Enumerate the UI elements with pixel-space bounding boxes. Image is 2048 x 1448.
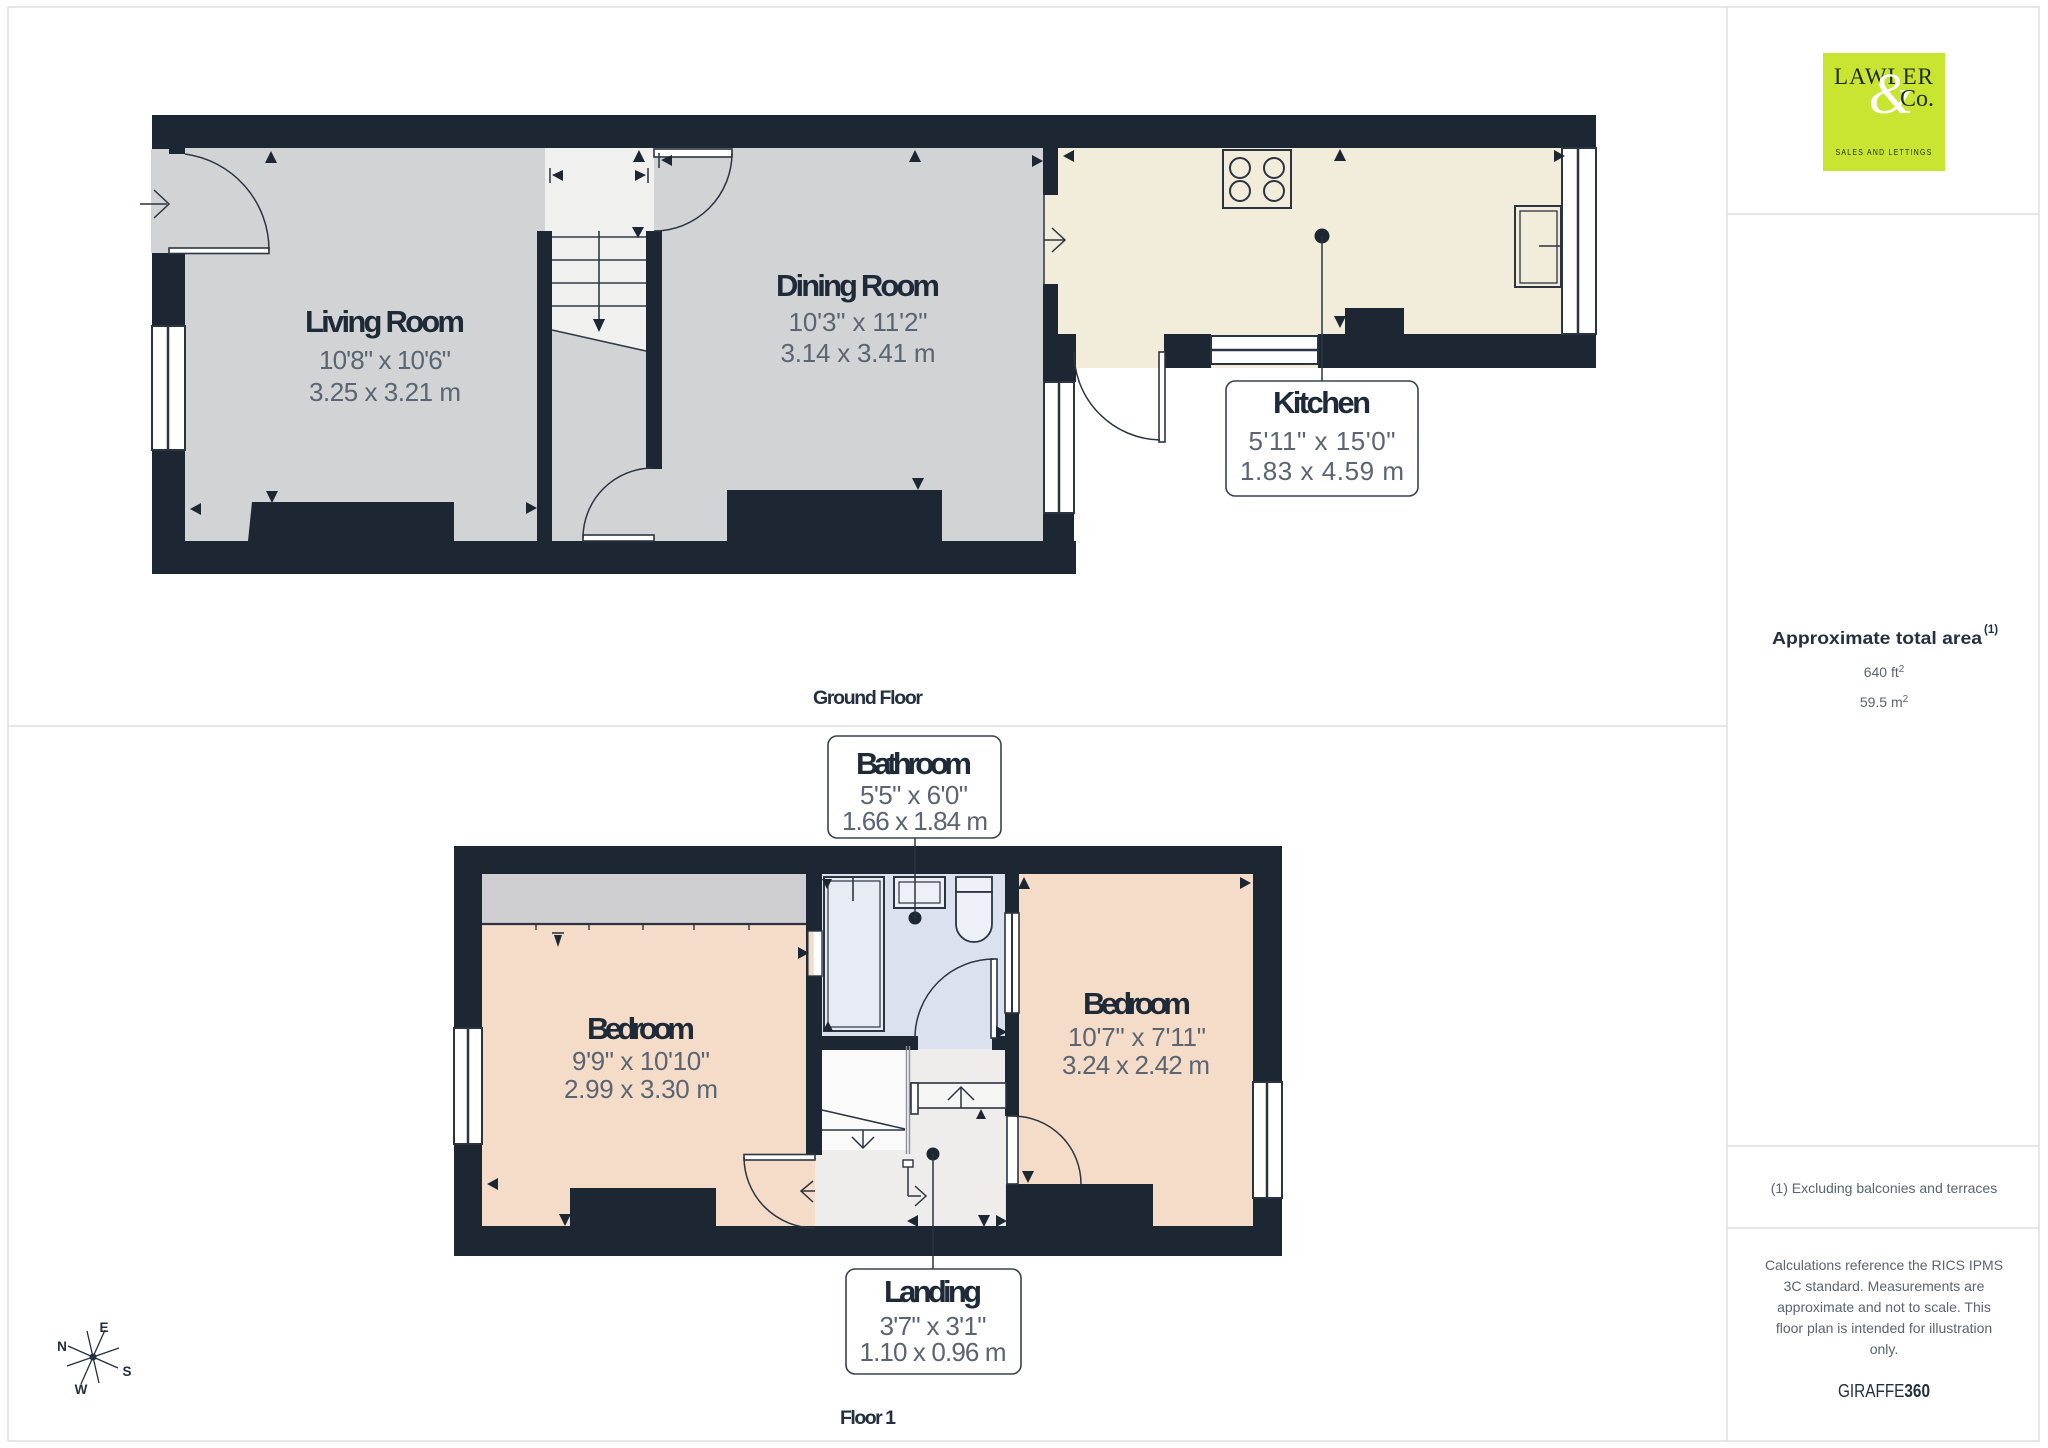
svg-text:10'7" x 7'11": 10'7" x 7'11" xyxy=(1068,1022,1206,1052)
svg-text:Approximate total area: Approximate total area xyxy=(1772,628,1982,648)
svg-text:Landing: Landing xyxy=(884,1274,982,1309)
svg-text:N: N xyxy=(57,1339,67,1354)
svg-text:floor plan is intended for ill: floor plan is intended for illustration xyxy=(1776,1320,1992,1336)
svg-text:5'11" x 15'0": 5'11" x 15'0" xyxy=(1249,426,1396,456)
svg-text:Bathroom: Bathroom xyxy=(856,746,972,781)
svg-text:Calculations reference the RIC: Calculations reference the RICS IPMS xyxy=(1765,1257,2003,1273)
svg-text:640 ft2: 640 ft2 xyxy=(1864,664,1905,680)
svg-text:S: S xyxy=(122,1364,131,1379)
svg-text:approximate and not to scale.: approximate and not to scale. This xyxy=(1777,1299,1991,1315)
svg-text:2.99 x 3.30 m: 2.99 x 3.30 m xyxy=(564,1074,718,1104)
svg-text:3.24 x 2.42 m: 3.24 x 2.42 m xyxy=(1062,1050,1210,1080)
svg-text:Bedroom: Bedroom xyxy=(1083,986,1191,1021)
svg-text:3C standard. Measurements are: 3C standard. Measurements are xyxy=(1784,1278,1985,1294)
svg-text:59.5 m2: 59.5 m2 xyxy=(1860,694,1909,710)
svg-text:SALES AND LETTINGS: SALES AND LETTINGS xyxy=(1836,147,1933,157)
svg-text:GIRAFFE360: GIRAFFE360 xyxy=(1838,1381,1930,1401)
svg-text:only.: only. xyxy=(1870,1341,1899,1357)
svg-text:Bedroom: Bedroom xyxy=(587,1011,695,1046)
svg-text:E: E xyxy=(99,1320,108,1335)
svg-text:Dining Room: Dining Room xyxy=(776,268,940,303)
svg-text:3.25 x 3.21 m: 3.25 x 3.21 m xyxy=(309,377,461,407)
svg-text:1.83 x 4.59 m: 1.83 x 4.59 m xyxy=(1240,456,1404,486)
svg-text:1.66 x 1.84 m: 1.66 x 1.84 m xyxy=(842,806,988,836)
svg-text:Kitchen: Kitchen xyxy=(1273,385,1371,420)
svg-text:W: W xyxy=(75,1382,88,1397)
svg-text:Living Room: Living Room xyxy=(305,304,465,339)
svg-text:Ground Floor: Ground Floor xyxy=(813,687,923,709)
svg-text:(1) Excluding balconies and te: (1) Excluding balconies and terraces xyxy=(1771,1180,1997,1196)
svg-text:Co.: Co. xyxy=(1900,86,1934,112)
svg-text:10'3" x 11'2": 10'3" x 11'2" xyxy=(789,307,928,337)
svg-text:Floor 1: Floor 1 xyxy=(840,1407,896,1429)
svg-text:(1): (1) xyxy=(1984,624,1998,636)
svg-text:3.14 x 3.41 m: 3.14 x 3.41 m xyxy=(781,338,936,368)
svg-text:10'8" x 10'6": 10'8" x 10'6" xyxy=(319,345,451,375)
svg-text:1.10 x 0.96 m: 1.10 x 0.96 m xyxy=(860,1337,1007,1367)
svg-text:9'9" x 10'10": 9'9" x 10'10" xyxy=(572,1046,710,1076)
